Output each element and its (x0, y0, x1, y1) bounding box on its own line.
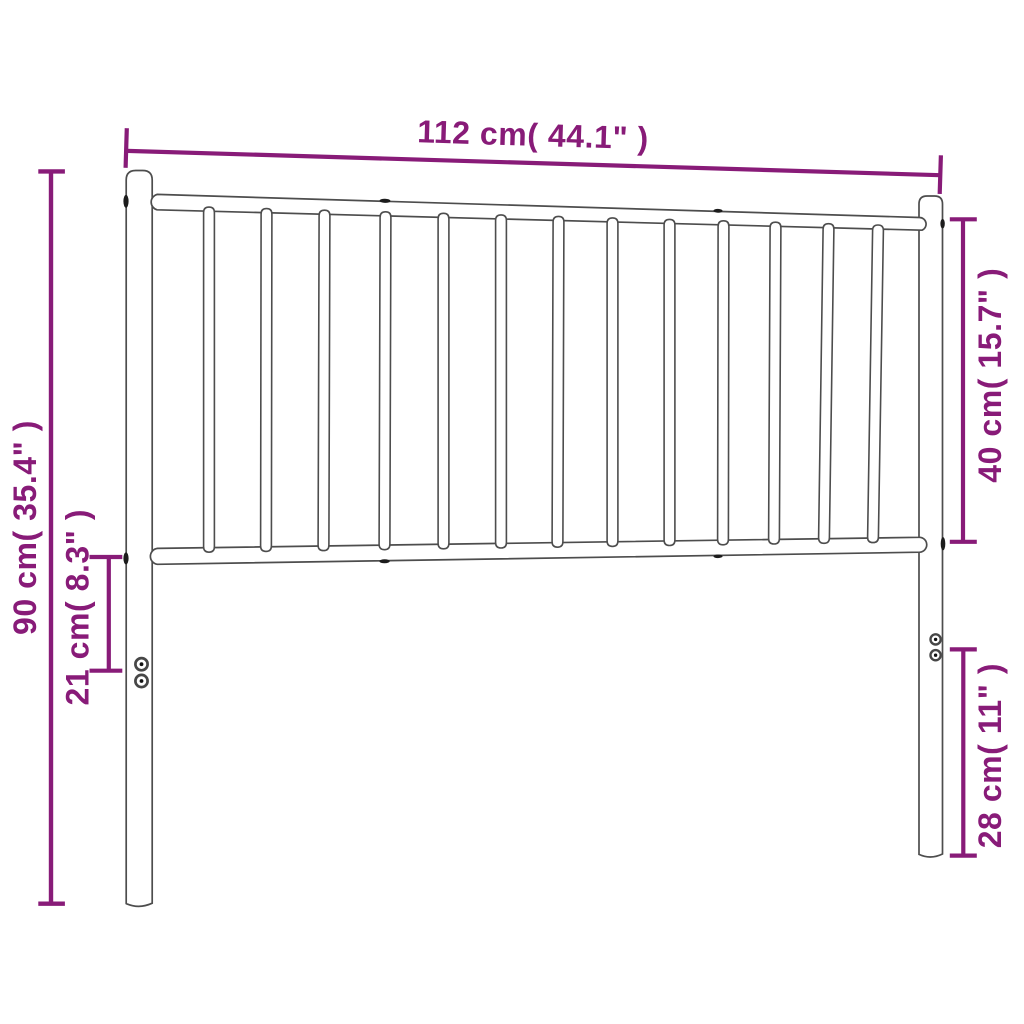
svg-text:28 cm( 11" ): 28 cm( 11" ) (972, 663, 1008, 848)
svg-text:90 cm( 35.4" ): 90 cm( 35.4" ) (7, 420, 43, 635)
svg-text:112 cm( 44.1" ): 112 cm( 44.1" ) (417, 113, 650, 156)
svg-text:40 cm( 15.7" ): 40 cm( 15.7" ) (972, 268, 1008, 483)
svg-text:21 cm( 8.3" ): 21 cm( 8.3" ) (60, 509, 96, 706)
